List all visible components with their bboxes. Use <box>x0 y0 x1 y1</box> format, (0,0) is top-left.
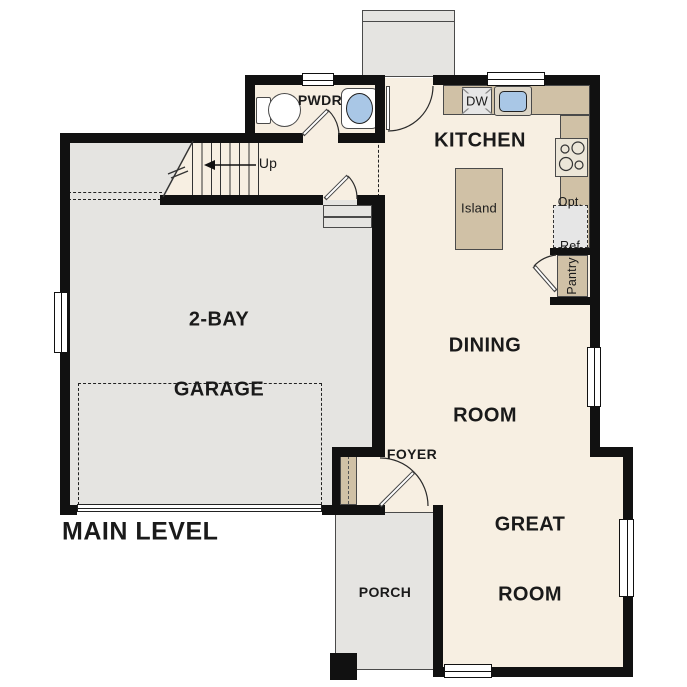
dining-room-label-line1: DINING <box>449 335 521 358</box>
pantry-label: Pantry <box>565 257 580 294</box>
garage-door-mid-line <box>78 508 321 509</box>
garage-clearance-dash-right <box>321 383 322 505</box>
toilet-bowl <box>268 93 301 127</box>
garage-label: 2-BAY GARAGE <box>174 262 264 448</box>
opt-ref-label-line2: Ref <box>558 239 582 254</box>
great-room-label: GREAT ROOM <box>495 467 566 653</box>
wall-stairs-bottom-stub <box>357 195 372 205</box>
window-pane-divider <box>488 79 544 80</box>
wall-garage-right <box>372 195 385 457</box>
wall-pwdr-bottom-right <box>338 133 385 143</box>
window-pane-divider <box>303 80 333 81</box>
garage-door-panel <box>77 504 322 512</box>
garage-label-line1: 2-BAY <box>174 309 264 332</box>
foyer-label: FOYER <box>387 446 437 462</box>
pwdr-sink-basin <box>346 93 373 124</box>
stairs-up-label: Up <box>259 155 277 171</box>
window-pane-divider <box>445 671 491 672</box>
dishwasher-label: DW <box>465 93 489 108</box>
garage-label-line2: GARAGE <box>174 378 264 401</box>
great-room-label-line2: ROOM <box>495 583 566 606</box>
rear-stoop <box>362 10 455 77</box>
porch-label: PORCH <box>359 584 412 600</box>
stair-treads <box>192 142 259 195</box>
wall-garage-bottom-right-stub <box>322 505 335 515</box>
kitchen-sink-basin <box>499 91 527 112</box>
porch-post <box>330 653 357 680</box>
garage-floor-lower <box>65 455 335 510</box>
hall-kitchen-opening-dash <box>378 140 379 197</box>
wall-great-step <box>590 447 633 457</box>
window-pane-divider <box>61 293 62 352</box>
wall-garage-topleft <box>60 133 255 143</box>
garage-step-upper <box>323 205 372 217</box>
island-label: Island <box>461 200 497 215</box>
window-pwdr <box>302 73 334 86</box>
wall-stairs-bottom <box>160 195 323 205</box>
floor-plan: PWDR KITCHEN DINING ROOM GREAT ROOM 2-BA… <box>0 0 687 687</box>
kitchen-label: KITCHEN <box>434 129 526 152</box>
stair-overhead-dash-1 <box>68 192 162 193</box>
window-great-right <box>619 519 634 597</box>
wall-pwdr-bottom-left <box>245 133 303 143</box>
level-title: MAIN LEVEL <box>62 518 218 547</box>
garage-clearance-dash-left <box>78 383 79 505</box>
window-pane-divider <box>594 348 595 406</box>
dining-room-label-line2: ROOM <box>449 404 521 427</box>
window-dining <box>587 347 601 407</box>
wall-pantry-bottom <box>550 297 590 305</box>
garage-step-lower <box>323 217 372 228</box>
window-pane-divider <box>627 520 628 596</box>
window-kitchen <box>487 72 545 86</box>
stoop-step-line <box>363 21 454 22</box>
pwdr-label: PWDR <box>298 92 342 108</box>
stair-overhead-dash-2 <box>68 199 166 200</box>
window-garage <box>54 292 68 353</box>
window-great-bottom <box>444 664 492 678</box>
wall-porch-great <box>433 505 443 667</box>
great-room-label-line1: GREAT <box>495 514 566 537</box>
opt-ref-label-line1: Opt. <box>558 195 582 210</box>
dining-room-label: DINING ROOM <box>449 288 521 474</box>
closet-rod-dash <box>348 456 349 504</box>
